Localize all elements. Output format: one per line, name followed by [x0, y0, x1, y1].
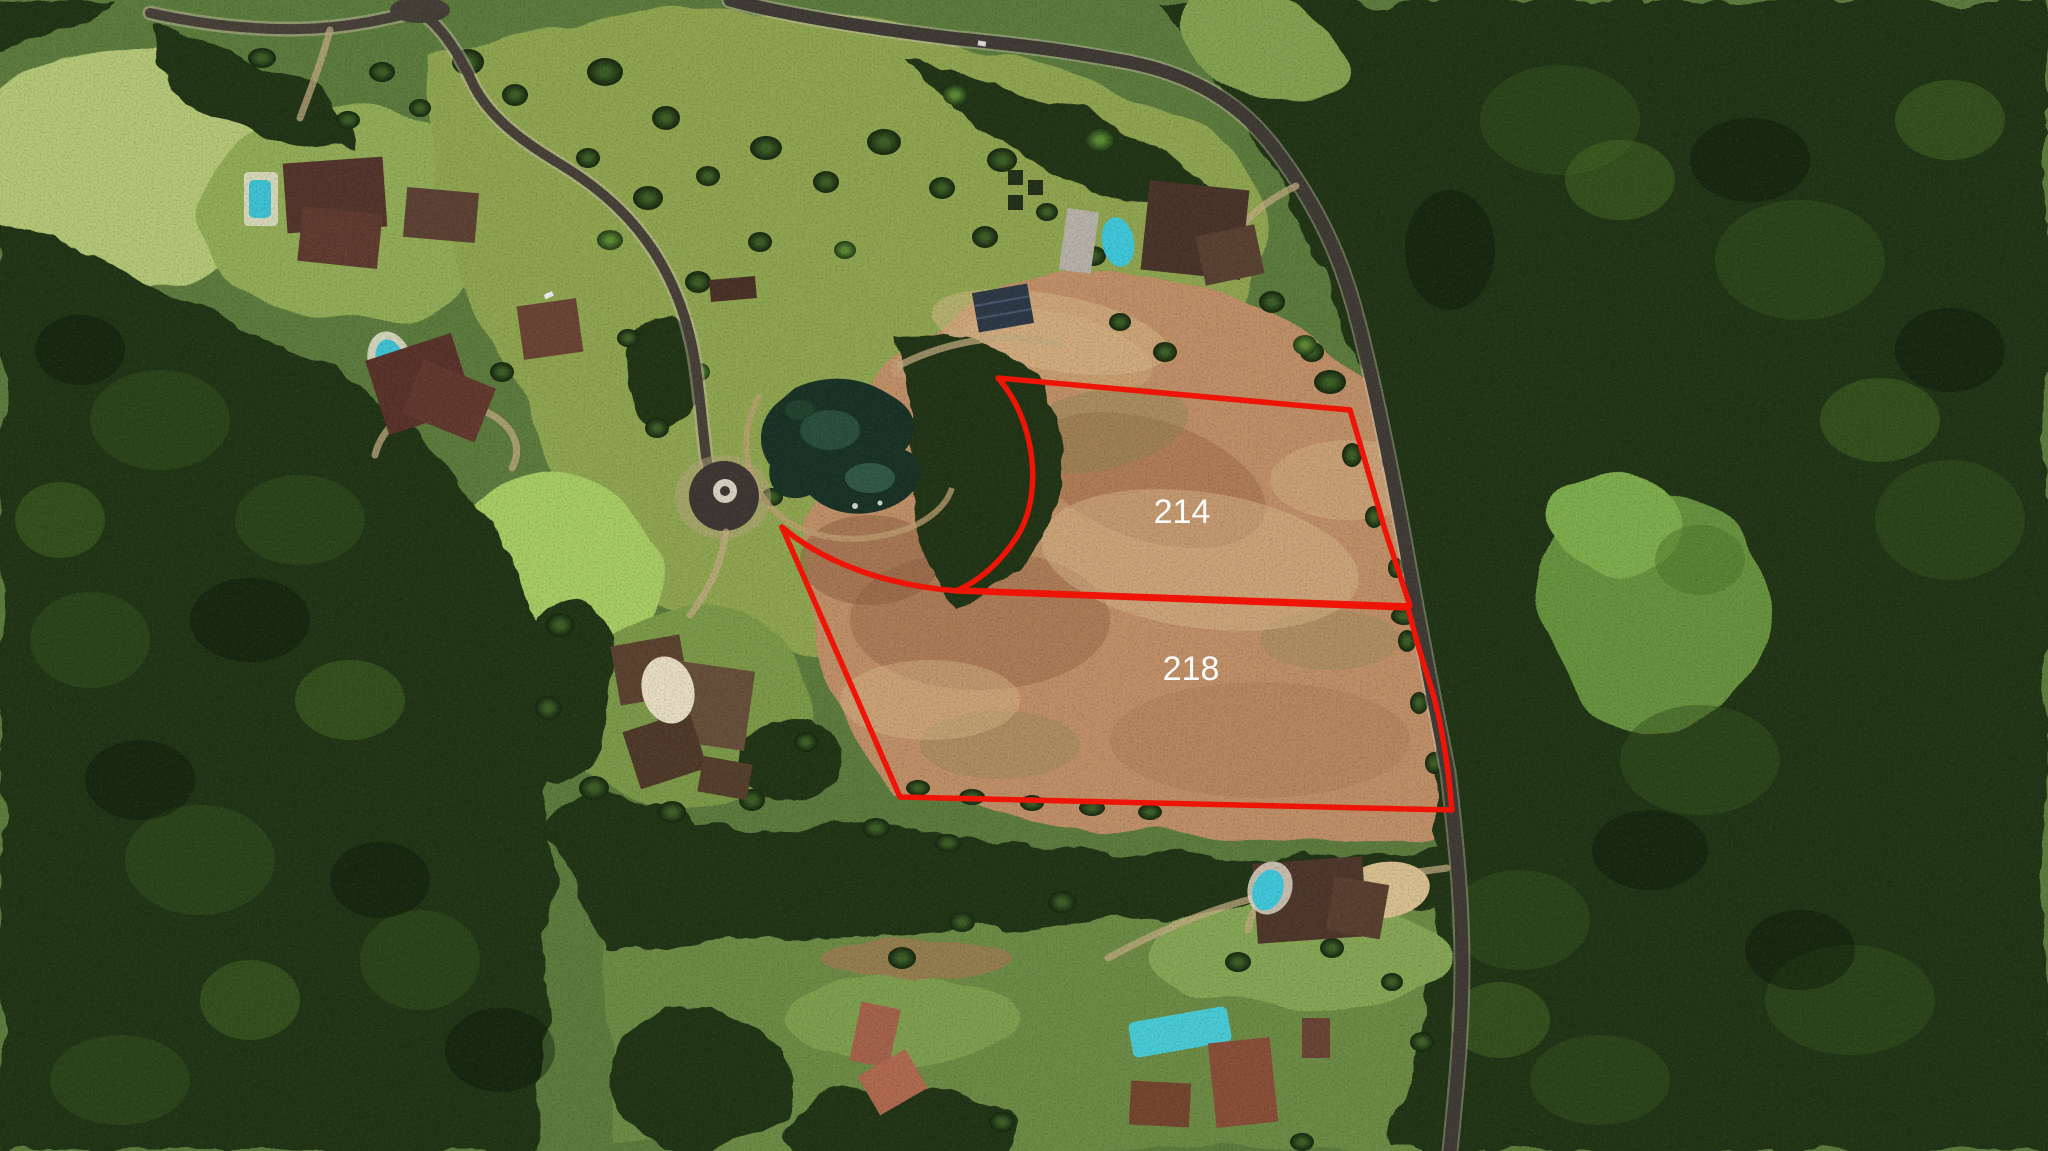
- parcel-214-label: 214: [1154, 493, 1211, 531]
- grain-light: [0, 0, 2048, 1151]
- parcel-218-label: 218: [1163, 650, 1220, 688]
- satellite-map: 214 218: [0, 0, 2048, 1151]
